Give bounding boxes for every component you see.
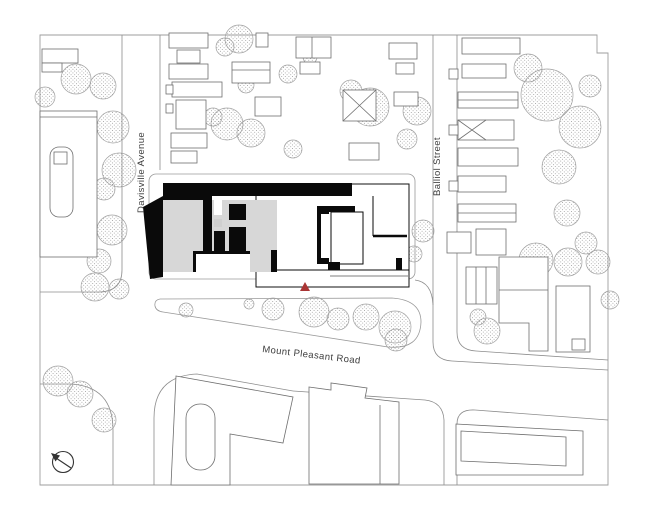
subject-building	[143, 183, 409, 287]
tree	[601, 291, 619, 309]
building-footprint	[172, 82, 222, 97]
subject-wall	[396, 258, 402, 270]
tree	[559, 106, 601, 148]
building-porch	[449, 69, 458, 79]
subject-wall	[328, 262, 340, 270]
building-footprint	[169, 64, 208, 79]
building-footprint	[389, 43, 417, 59]
subject-room	[331, 212, 363, 264]
site-plan-drawing: Davisville Avenue Balliol Street Mount P…	[0, 0, 650, 520]
building-footprint	[42, 63, 62, 72]
tree	[61, 64, 91, 94]
tree	[353, 304, 379, 330]
building-footprint	[458, 120, 514, 140]
tree	[204, 108, 222, 126]
subject-wall	[271, 250, 277, 272]
building-footprint	[171, 133, 207, 148]
tree	[262, 298, 284, 320]
building-footprint	[42, 49, 78, 63]
building-footprint	[296, 37, 331, 58]
tree	[179, 303, 193, 317]
tree	[216, 38, 234, 56]
tree	[299, 297, 329, 327]
tree	[279, 65, 297, 83]
building-footprint	[177, 50, 200, 63]
street-label-balliol: Balliol Street	[432, 137, 443, 196]
tree	[97, 111, 129, 143]
tree	[244, 299, 254, 309]
subject-core	[203, 196, 212, 254]
building-porch	[449, 181, 458, 191]
building-footprint	[447, 232, 471, 253]
tree	[579, 75, 601, 97]
building-footprint	[232, 62, 270, 83]
tree	[554, 248, 582, 276]
building-footprint	[466, 267, 497, 304]
building-footprint	[396, 63, 414, 74]
tree	[586, 250, 610, 274]
building-footprint	[394, 92, 418, 106]
tree	[284, 140, 302, 158]
tree	[90, 73, 116, 99]
building-footprint	[171, 151, 197, 163]
building-porch	[166, 85, 173, 94]
building-footprint	[255, 97, 281, 116]
curb-lot-to-balliol	[415, 280, 433, 305]
street-label-mount-pleasant: Mount Pleasant Road	[262, 344, 362, 367]
building-footprint	[462, 64, 506, 78]
building-footprint	[458, 176, 506, 192]
building-footprint	[169, 33, 208, 48]
building-footprint	[171, 376, 293, 485]
tree	[81, 273, 109, 301]
building-footprint	[458, 148, 518, 166]
building-porch	[166, 104, 173, 113]
subject-core	[229, 227, 246, 253]
building-footprint	[499, 257, 548, 351]
north-arrow-compass-icon	[51, 452, 74, 473]
subject-court	[193, 251, 250, 272]
tree	[67, 381, 93, 407]
tree	[327, 308, 349, 330]
building-footprint	[176, 100, 206, 129]
tree	[385, 329, 407, 351]
tree	[542, 150, 576, 184]
building-footprint	[309, 383, 399, 484]
building-porch	[449, 125, 458, 135]
building-footprint	[462, 38, 520, 54]
subject-core	[214, 231, 225, 254]
tree	[92, 408, 116, 432]
north-arrow-needle	[56, 458, 71, 468]
subject-wall	[193, 251, 196, 272]
building-footprint	[256, 33, 268, 47]
street-label-davisville: Davisville Avenue	[136, 132, 147, 213]
subject-core	[229, 204, 246, 220]
building-footprint	[40, 111, 97, 257]
building-footprint	[476, 229, 506, 255]
tree	[397, 129, 417, 149]
site-plan: Davisville Avenue Balliol Street Mount P…	[0, 0, 650, 520]
subject-core	[214, 199, 222, 215]
building-footprint	[349, 143, 379, 160]
subject-core	[214, 219, 222, 227]
tree	[97, 215, 127, 245]
building-footprint	[300, 62, 320, 74]
subject-wall	[321, 214, 329, 258]
tree	[470, 309, 486, 325]
tree	[35, 87, 55, 107]
tree	[554, 200, 580, 226]
tree	[109, 279, 129, 299]
tree	[237, 119, 265, 147]
